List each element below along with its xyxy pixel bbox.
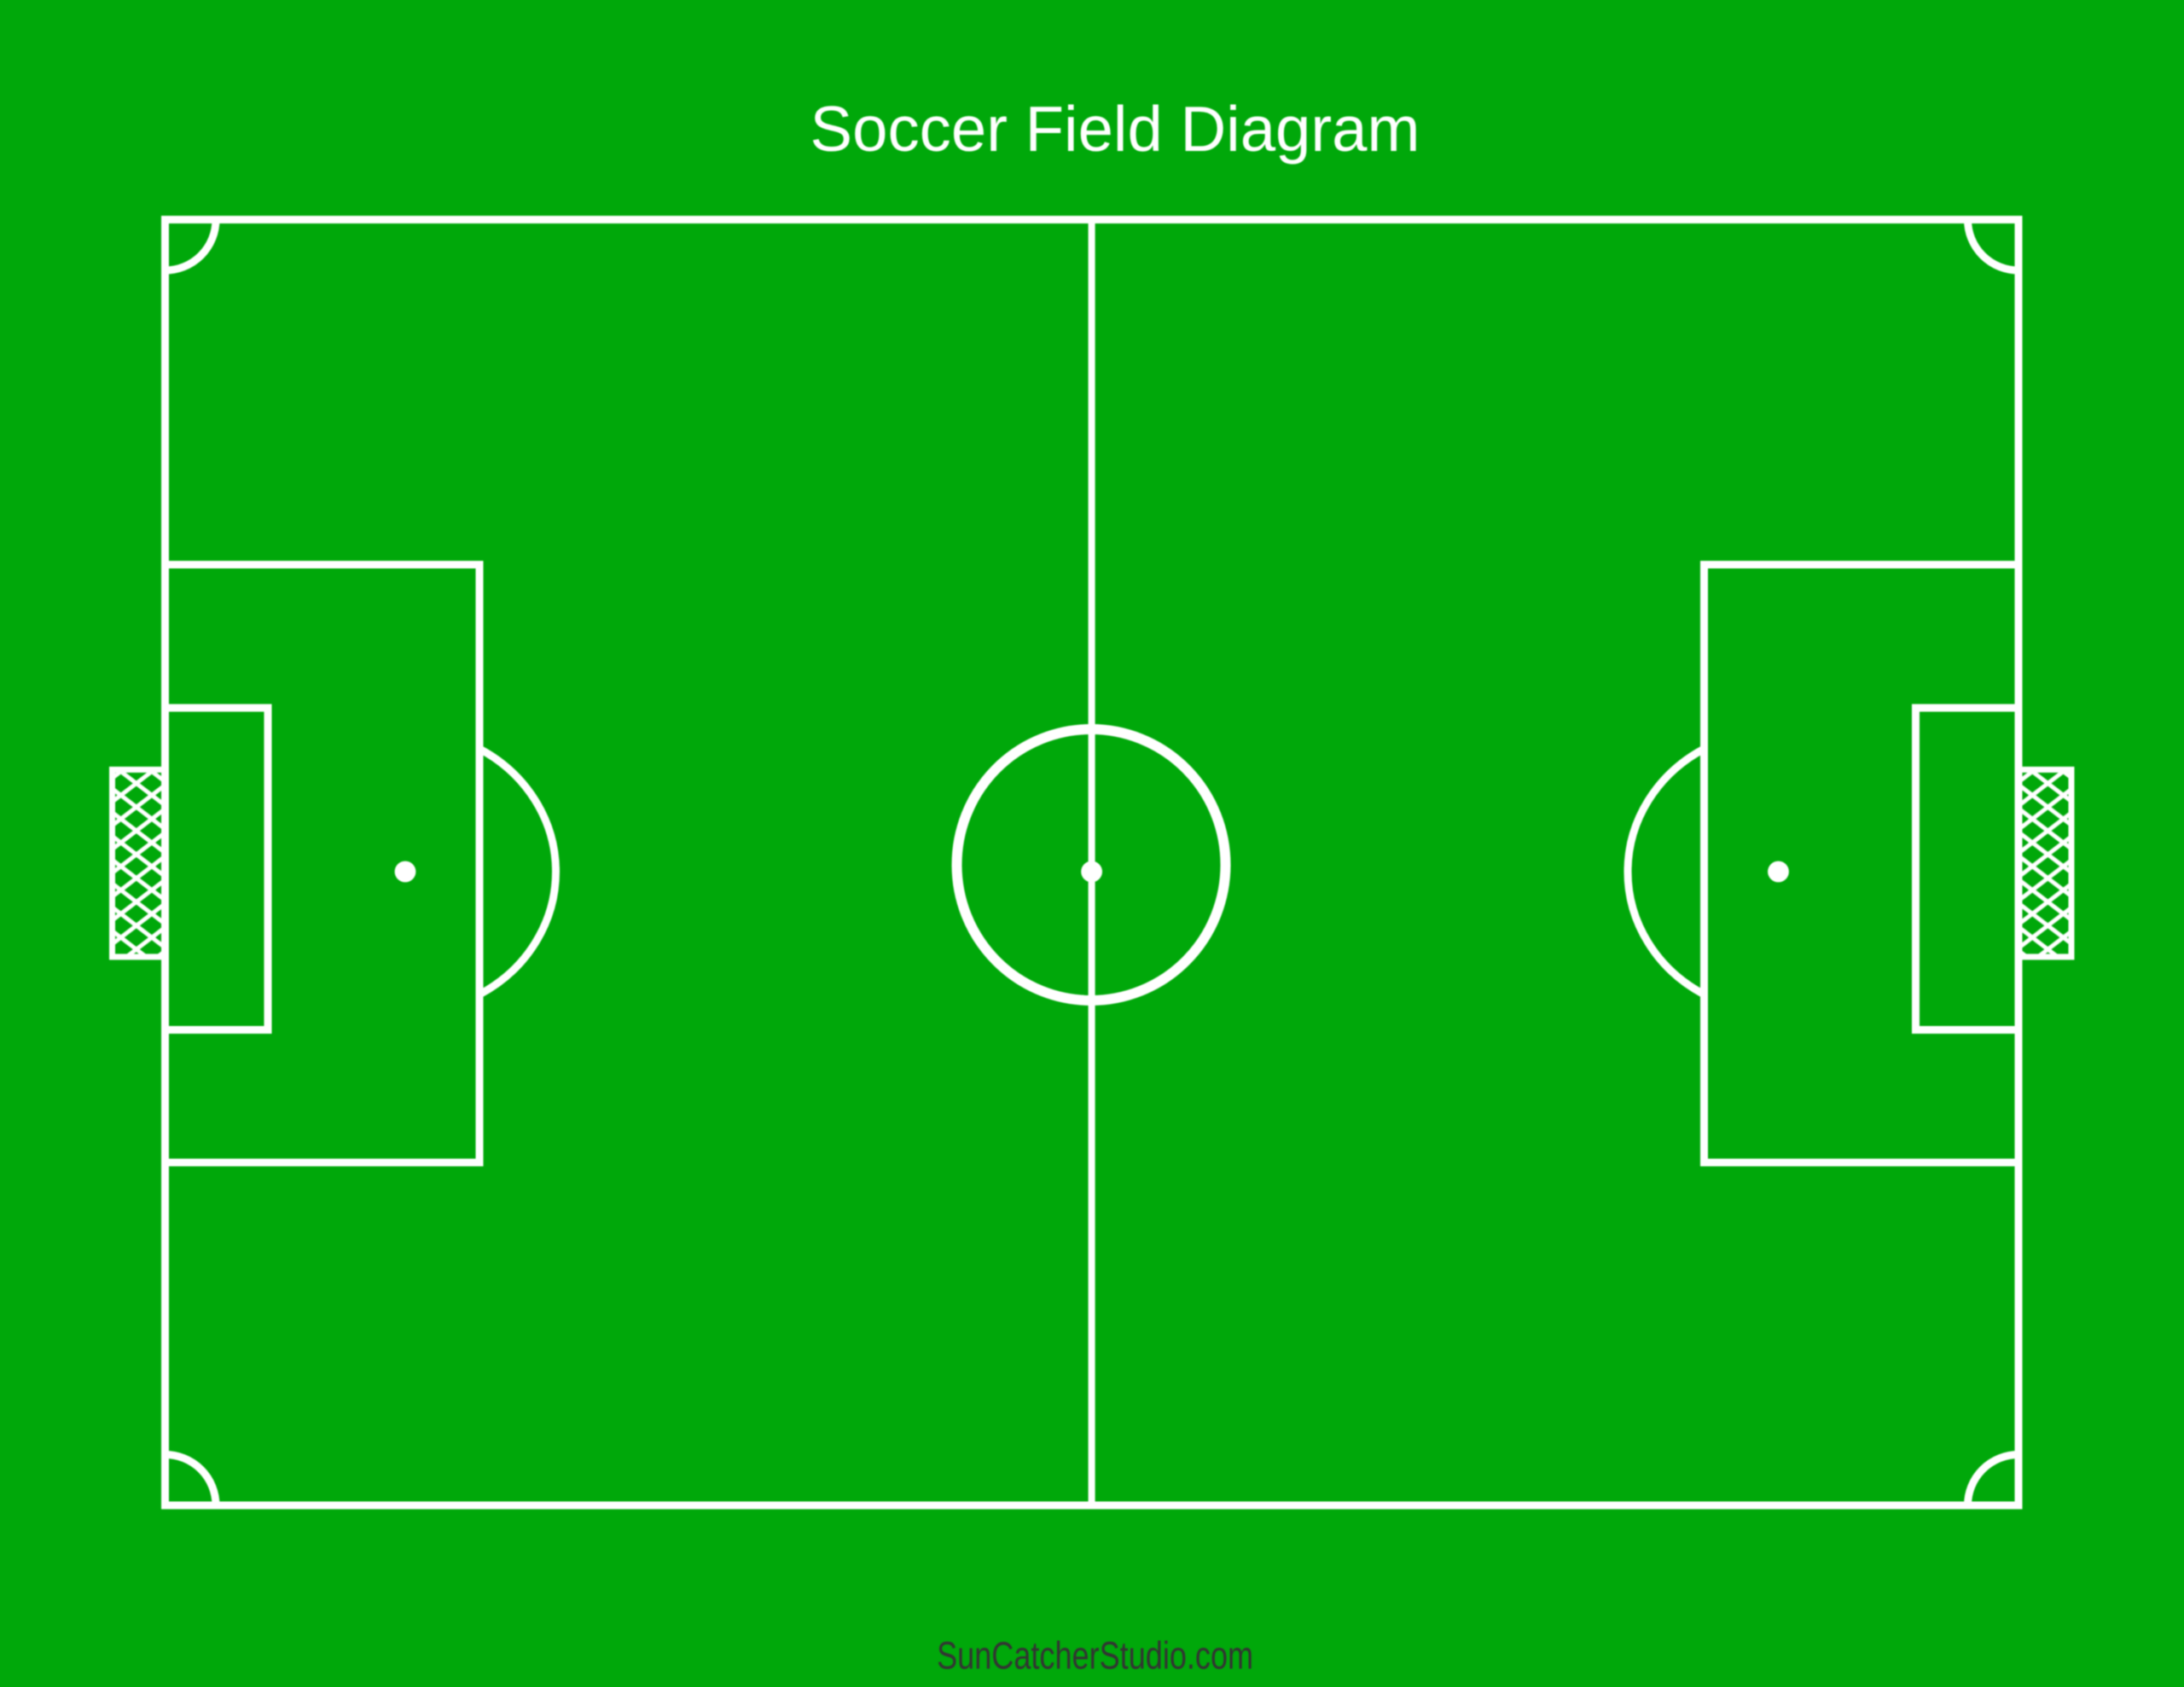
svg-text:SunCatcherStudio.com: SunCatcherStudio.com xyxy=(937,1634,1253,1678)
svg-text:Soccer Field Diagram: Soccer Field Diagram xyxy=(810,93,1420,165)
